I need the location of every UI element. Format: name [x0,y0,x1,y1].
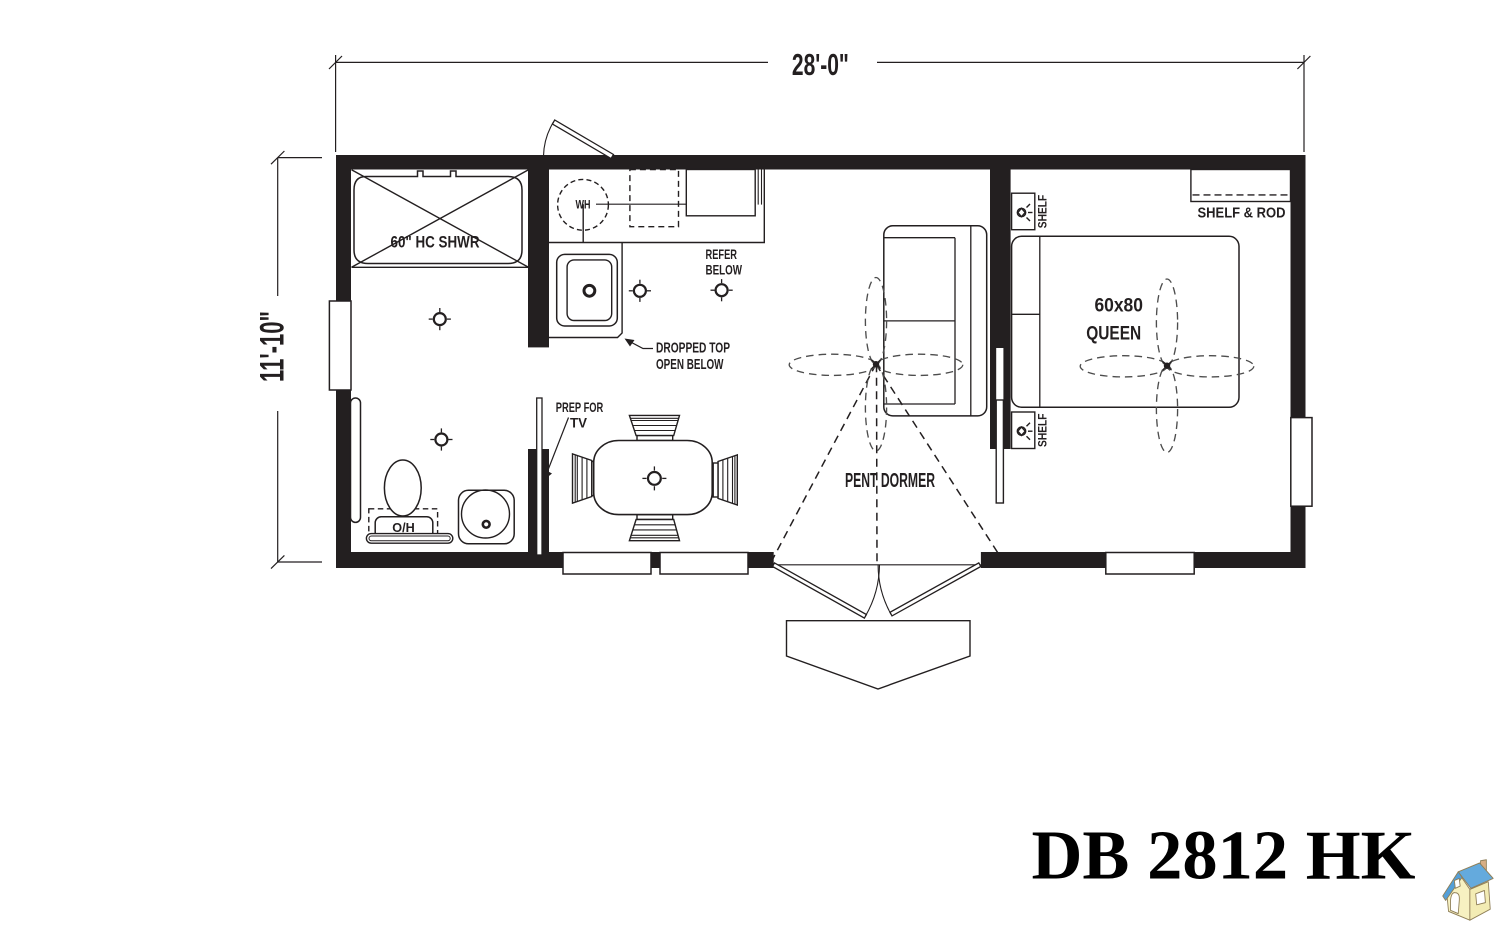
svg-text:SHELF & ROD: SHELF & ROD [1198,206,1286,222]
svg-text:BELOW: BELOW [706,262,743,278]
svg-text:PENT DORMER: PENT DORMER [845,470,935,492]
svg-text:QUEEN: QUEEN [1086,323,1141,345]
svg-text:SHELF: SHELF [1036,413,1050,447]
svg-text:DROPPED TOP: DROPPED TOP [656,340,730,357]
svg-text:60" HC SHWR: 60" HC SHWR [391,234,480,252]
svg-text:WH: WH [576,200,591,212]
svg-text:TV: TV [570,415,588,431]
svg-text:60x80: 60x80 [1094,295,1143,317]
svg-text:SHELF: SHELF [1036,195,1050,229]
svg-text:11'-10": 11'-10" [254,311,292,382]
svg-text:OPEN BELOW: OPEN BELOW [656,356,724,373]
svg-text:PREP FOR: PREP FOR [556,399,604,415]
svg-text:28'-0": 28'-0" [792,48,849,82]
svg-text:O/H: O/H [392,520,415,535]
svg-text:DB 2812 HK: DB 2812 HK [1032,818,1416,895]
svg-text:REFER: REFER [706,246,738,262]
